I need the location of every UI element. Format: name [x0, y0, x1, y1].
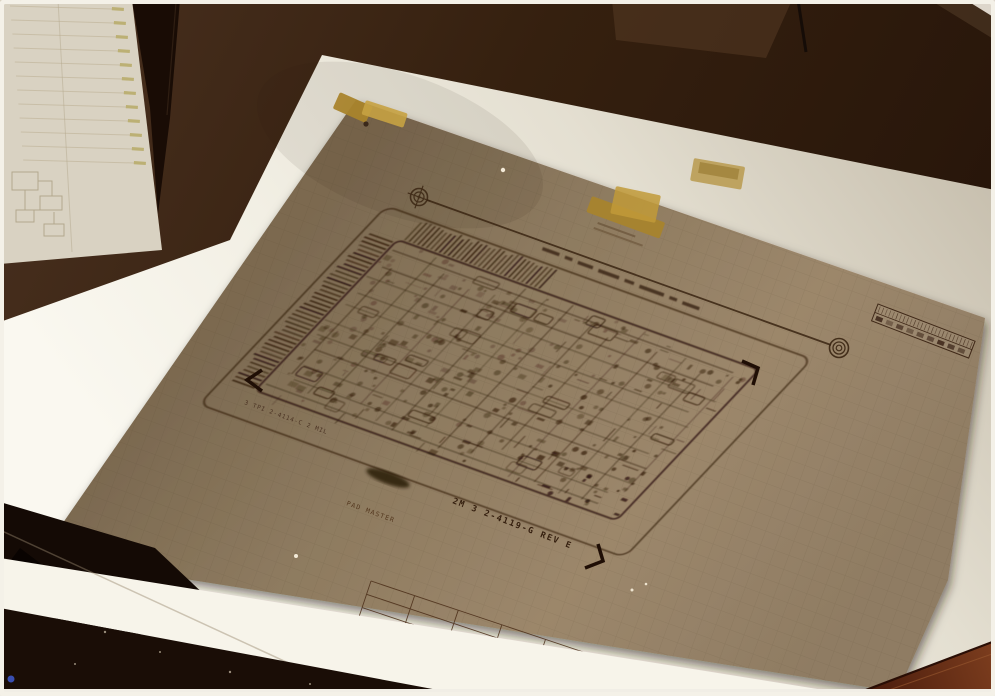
white-speck-2 [294, 554, 298, 558]
film-punch-dot [363, 121, 368, 126]
white-speck-1 [501, 168, 505, 172]
white-speck-4 [645, 583, 648, 586]
white-speck-3 [631, 589, 634, 592]
photo-of-light-table: 3 TPI 2-4114-C 2 MIL PAD MASTER 2M 3 2-4… [0, 0, 995, 696]
scene-canvas: 3 TPI 2-4114-C 2 MIL PAD MASTER 2M 3 2-4… [0, 0, 995, 696]
blue-speck [8, 676, 15, 683]
